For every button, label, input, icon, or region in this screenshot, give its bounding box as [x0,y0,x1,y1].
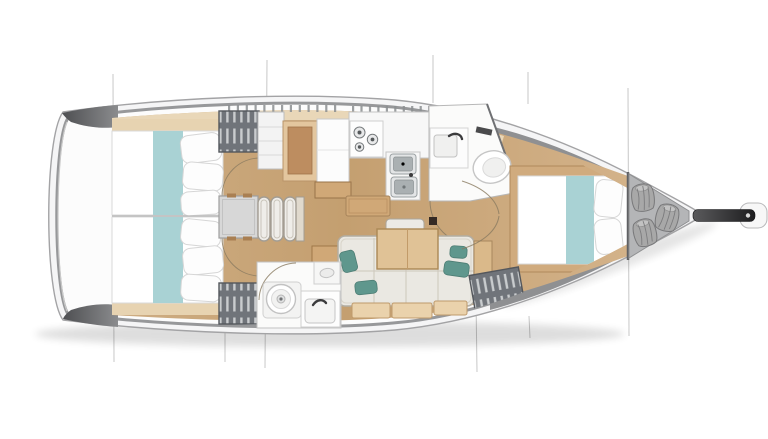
deck-tick [325,105,327,112]
deck-tick [299,105,301,112]
step [258,197,270,241]
nav-seat [288,127,312,174]
bed-runner [153,217,183,303]
sail-bag-icon [630,183,655,212]
companionway [219,194,304,242]
bed-pillows [179,132,224,217]
deck-tick [334,105,336,112]
sink-faucet-icon [409,173,413,177]
stove-icon [350,121,383,157]
berth-shelf [112,119,220,131]
deck-tick [290,105,292,112]
floor-plan-canvas [0,0,768,439]
engine-box [219,196,258,238]
wardrobe-icon [219,283,259,324]
companionway-steps [258,197,304,241]
deck-tick [272,105,274,112]
washbasin-icon [434,135,457,157]
step-back [296,197,304,241]
nav-drawer [315,182,351,198]
deck-tick [308,105,310,112]
bed-runner [566,176,594,264]
mast-post [429,217,437,225]
berth-shelf [112,303,220,315]
wardrobe-icon [219,111,259,152]
settee-drawer-fronts [352,301,467,318]
aft-head [257,262,341,328]
bed-pillows [180,218,225,302]
washbasin-icon [305,299,335,323]
step [284,197,296,241]
step [271,197,283,241]
roller-pin-icon [746,213,750,217]
yacht-floor-plan [0,0,768,439]
toilet-icon [267,285,296,314]
deck-tick [316,105,318,112]
deck-tick [263,105,265,112]
bed-runner [153,131,183,215]
bowsprit-anchor-roller [693,210,755,222]
deck-tick [281,105,283,112]
